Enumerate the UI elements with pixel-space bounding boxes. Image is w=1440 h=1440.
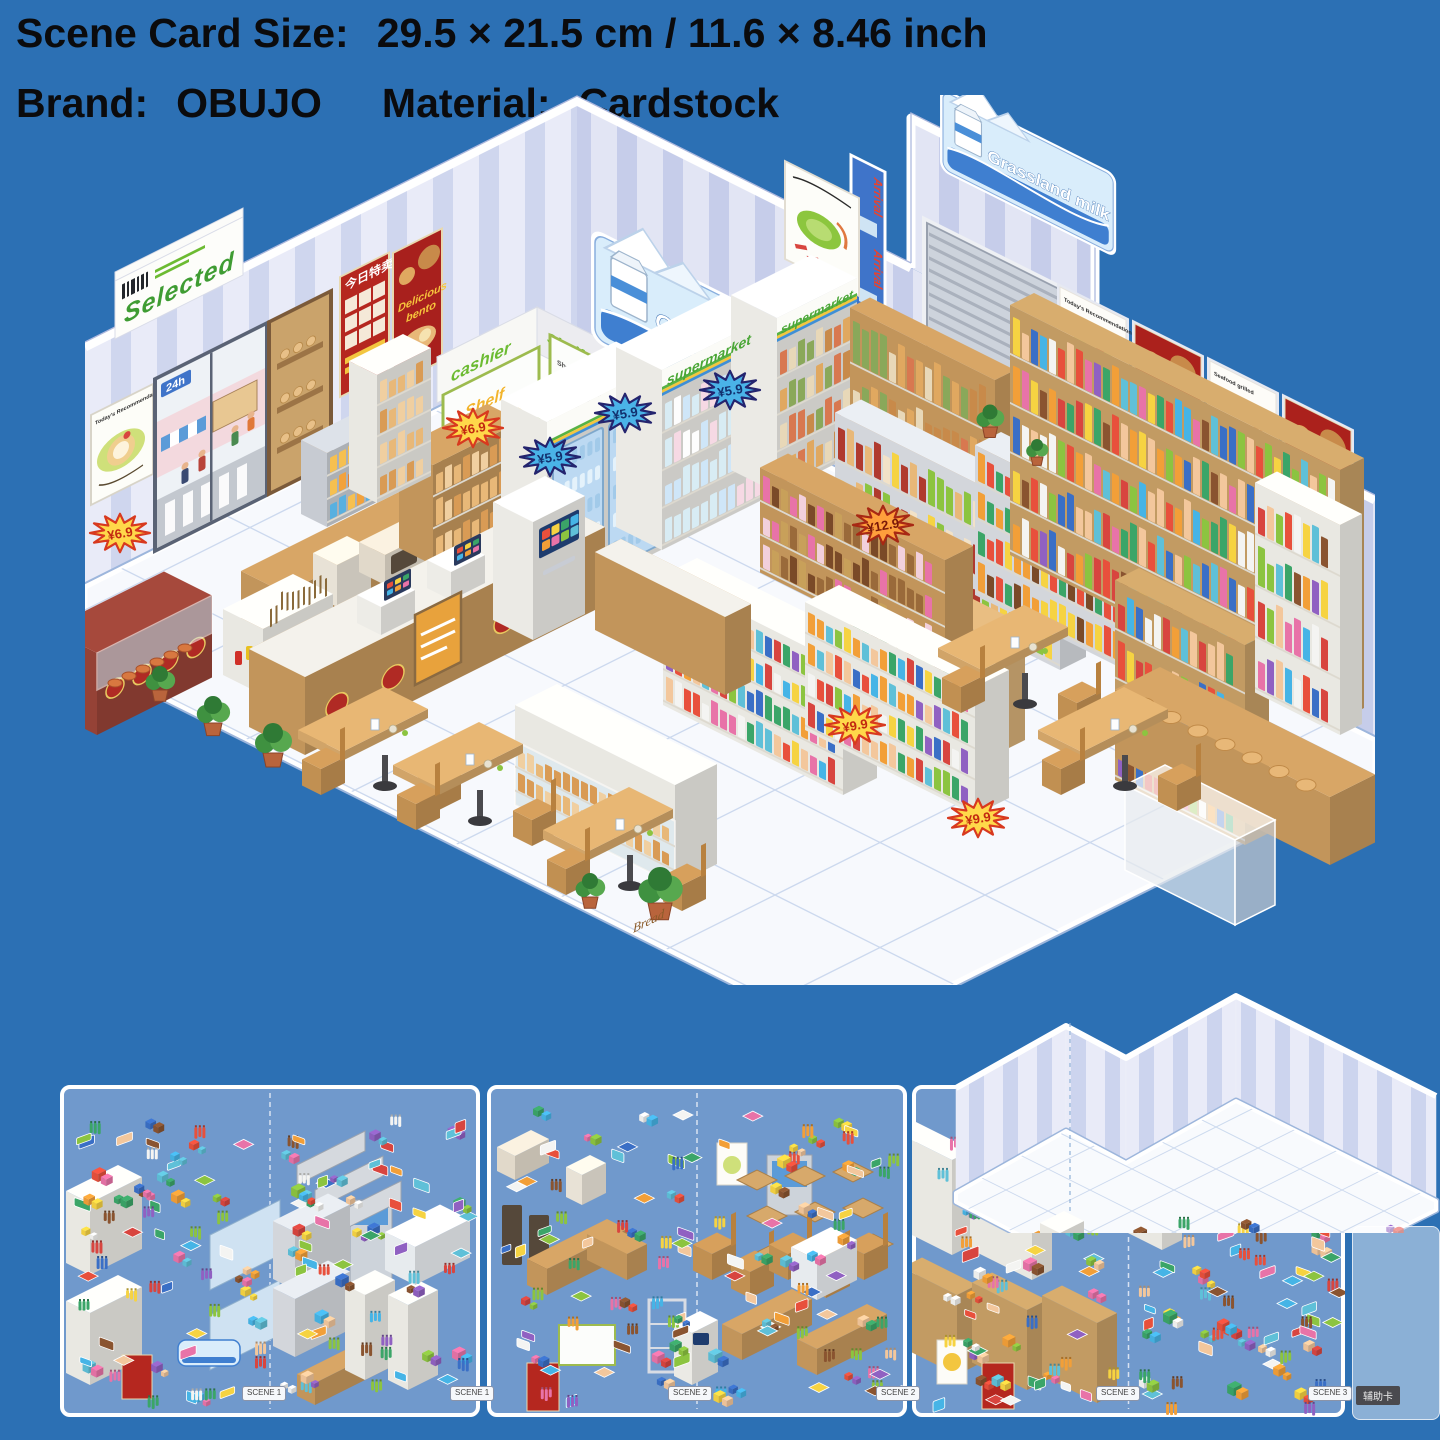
sticker-sheet-1 [60, 1085, 480, 1417]
sheet2-panel1-label: SCENE 2 [668, 1386, 712, 1401]
arrival-text-1: Arrival [871, 175, 885, 220]
size-label: Scene Card Size: [16, 10, 349, 56]
sheet1-panel2-label: SCENE 1 [450, 1386, 494, 1401]
arrival-text-2: Arrival [871, 247, 885, 292]
aux-card-tag: 辅助卡 [1356, 1386, 1400, 1405]
sheet2-panel2-label: SCENE 2 [876, 1386, 920, 1401]
size-value: 29.5 × 21.5 cm / 11.6 × 8.46 inch [377, 10, 988, 56]
sheet3-panel1-label: SCENE 3 [1096, 1386, 1140, 1401]
sheet1-panel1-label: SCENE 1 [242, 1386, 286, 1401]
room-template [950, 858, 1440, 1233]
sheet3-panel2-label: SCENE 3 [1308, 1386, 1352, 1401]
sticker-sheet-2 [487, 1085, 907, 1417]
size-line: Scene Card Size:29.5 × 21.5 cm / 11.6 × … [16, 10, 1016, 57]
product-image: Scene Card Size:29.5 × 21.5 cm / 11.6 × … [0, 0, 1440, 1440]
store-scene-illustration: Grassland milk [85, 95, 1375, 985]
